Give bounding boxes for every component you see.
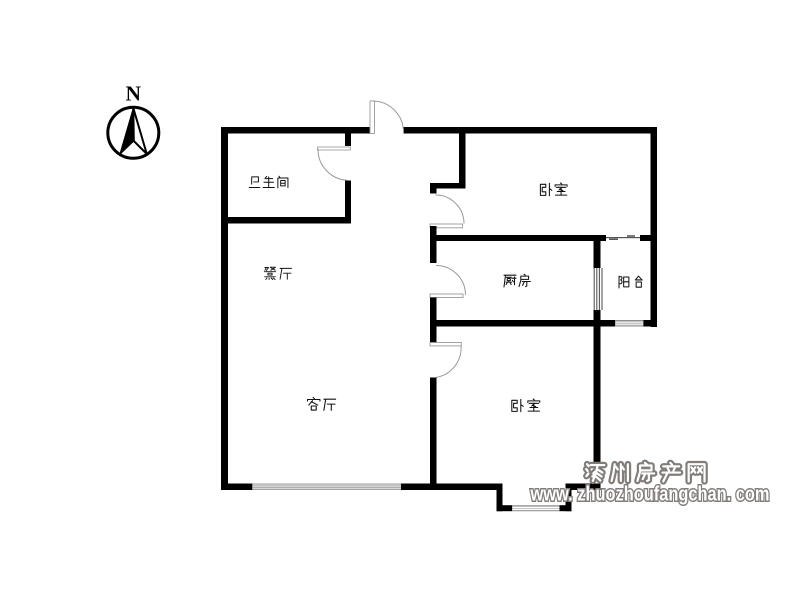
svg-text:N: N [126,82,142,106]
svg-text:www. zhuozhoufangchan. com: www. zhuozhoufangchan. com [530,483,770,505]
